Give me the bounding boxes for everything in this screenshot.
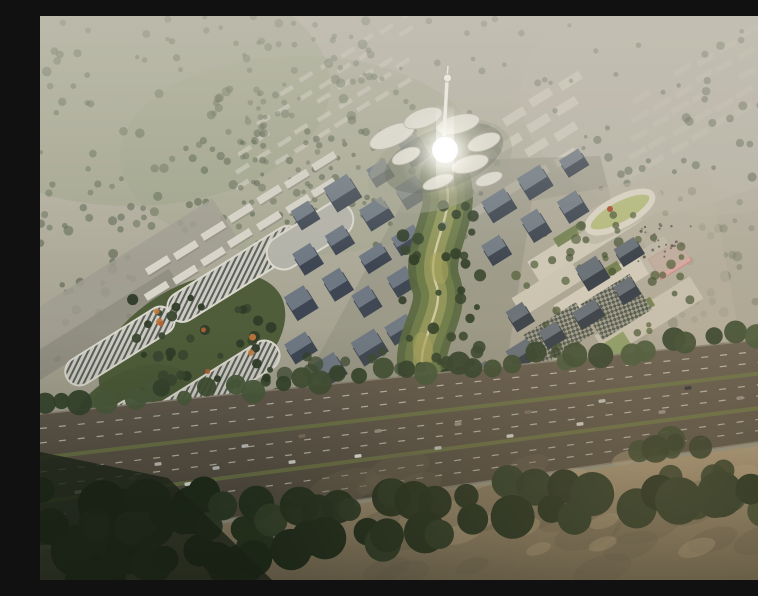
scene-canvas [40, 16, 758, 580]
warm-light-overlay [40, 16, 758, 580]
lighting-overlays [40, 16, 758, 580]
aerial-render [40, 16, 758, 580]
